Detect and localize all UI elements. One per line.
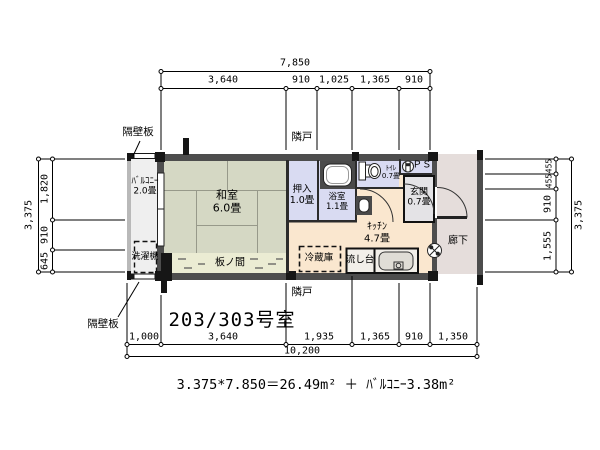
washbasin-icon bbox=[356, 196, 372, 215]
corridor-area bbox=[437, 154, 477, 274]
dim-right-seg-1: 455 bbox=[544, 174, 553, 188]
unit-title: 203/303号室 bbox=[168, 310, 295, 332]
dim-bottom-seg-1: 3,640 bbox=[208, 331, 238, 343]
balcony-rail bbox=[127, 156, 131, 276]
balcony-rail-cap-bottom bbox=[127, 271, 131, 280]
itanoma-label: 板ノ間 bbox=[215, 257, 245, 269]
dim-right-seg-2: 910 bbox=[542, 195, 554, 213]
washing-machine-label: 洗濯機 bbox=[131, 252, 158, 262]
bathroom-label: 浴室 1.1畳 bbox=[326, 193, 348, 213]
floor-plan: 7,850 3,640 910 1,025 1,365 910 3,375 1,… bbox=[0, 0, 600, 450]
kitchen-label: ｷｯﾁﾝ 4.7畳 bbox=[364, 222, 390, 245]
neighbor-label-top: 隣戸 bbox=[292, 131, 313, 143]
dim-bottom-seg-0: 1,000 bbox=[129, 331, 159, 343]
dim-bottom-seg-2: 1,935 bbox=[304, 331, 334, 343]
toilet-label: ﾄｲﾚ 0.7畳 bbox=[382, 164, 400, 180]
oshiire-label: 押入 1.0畳 bbox=[290, 185, 315, 207]
partition-board-label-top: 隔壁板 bbox=[122, 126, 154, 138]
balcony-label: ﾊﾞﾙｺﾆｰ 2.0畳 bbox=[131, 177, 158, 198]
dim-top-seg-2: 1,025 bbox=[319, 74, 349, 86]
gas-meter-icon bbox=[428, 244, 442, 258]
dim-bottom-seg-5: 1,350 bbox=[438, 331, 468, 343]
bathtub-icon bbox=[320, 161, 355, 189]
area-formula: 3.375*7.850＝26.49m² ＋ ﾊﾞﾙｺﾆｰ3.38m² bbox=[177, 378, 456, 394]
dim-top-seg-1: 910 bbox=[292, 74, 310, 86]
refrigerator-label: 冷蔵庫 bbox=[305, 254, 334, 265]
corridor-label: 廊下 bbox=[448, 235, 468, 247]
toilet-icon bbox=[359, 162, 381, 180]
dim-left-seg-0: 1,820 bbox=[39, 174, 51, 204]
pipe-space-label: ＰＳ bbox=[412, 161, 431, 172]
dim-right-seg-0: 455 bbox=[544, 159, 553, 173]
dim-top-seg-3: 1,365 bbox=[360, 74, 390, 86]
genkan-label: 玄関 0.7畳 bbox=[407, 188, 430, 209]
partition-board-label-bottom: 隔壁板 bbox=[87, 318, 119, 330]
dim-bottom-seg-3: 1,365 bbox=[360, 331, 390, 343]
neighbor-label-bottom: 隣戸 bbox=[292, 286, 313, 298]
dim-top-seg-4: 910 bbox=[405, 74, 423, 86]
dim-left-seg-2: 645 bbox=[39, 252, 51, 270]
dim-top-total: 7,850 bbox=[280, 57, 310, 69]
dim-bottom-total: 10,200 bbox=[284, 345, 320, 357]
washitsu-label: 和室 6.0畳 bbox=[213, 189, 242, 214]
dim-left-seg-1: 910 bbox=[39, 226, 51, 244]
dim-top-seg-0: 3,640 bbox=[208, 74, 238, 86]
sink-label: 流し台 bbox=[346, 256, 375, 267]
dim-right-seg-3: 1,555 bbox=[542, 231, 554, 261]
dim-right-total: 3,375 bbox=[573, 200, 585, 230]
dim-left-total: 3,375 bbox=[23, 200, 35, 230]
balcony-rail-cap-top bbox=[127, 153, 131, 161]
dim-bottom-seg-4: 910 bbox=[405, 331, 423, 343]
